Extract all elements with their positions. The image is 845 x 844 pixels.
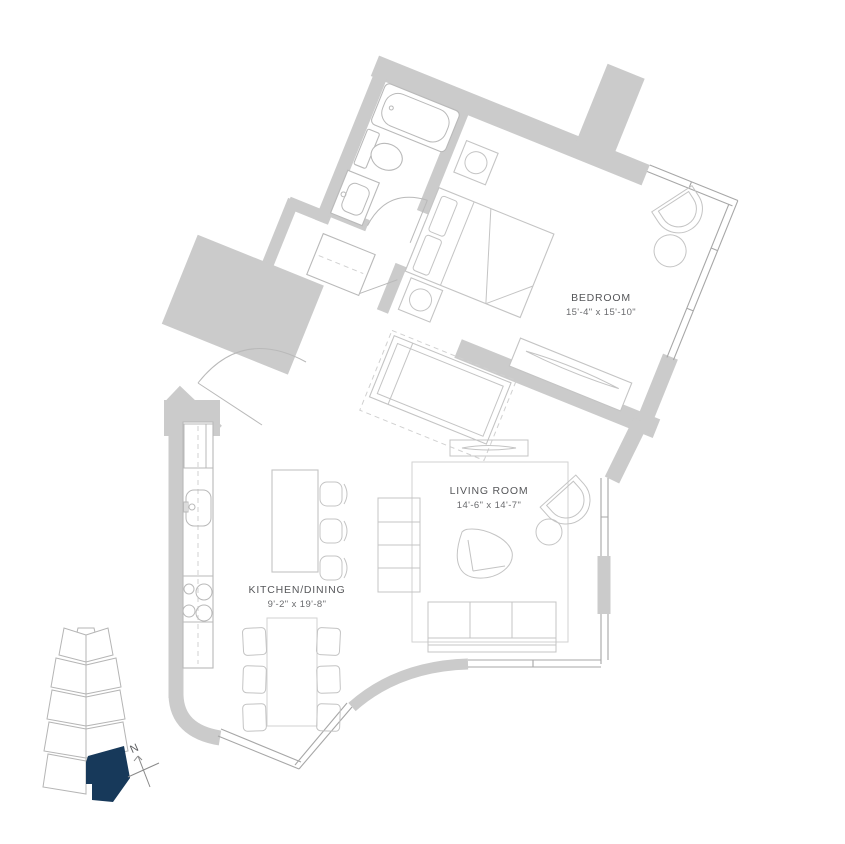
keyplan-unit: [44, 722, 86, 758]
window-se: [295, 703, 352, 769]
living-room-dims: 14'-6" x 14'-7": [457, 500, 521, 511]
window-south: [468, 660, 601, 667]
bath-door-arc: [367, 183, 427, 243]
stool-2: [320, 519, 342, 543]
window-mullions: [647, 182, 738, 311]
sofa-cushions: [428, 602, 556, 645]
stool-1: [320, 482, 342, 506]
wall-hall-stub: [382, 265, 401, 311]
nightstand-top: [454, 141, 498, 185]
lower-walls: [164, 393, 641, 769]
bath-door: [367, 183, 427, 243]
sofa: [428, 602, 556, 652]
kitchen-dining-label: KITCHEN/DINING: [249, 584, 346, 596]
chair: [243, 704, 267, 732]
keyplan-unit: [86, 690, 125, 726]
nightstand-bottom: [398, 278, 442, 322]
living-room-label: LIVING ROOM: [450, 485, 529, 497]
window-east-lower: [601, 613, 608, 664]
tv-console: [378, 498, 420, 592]
wall-left-lower: [267, 200, 294, 267]
kitchen-island: [272, 470, 347, 580]
chair-inner: [658, 192, 703, 234]
curved-wall: [352, 664, 468, 707]
chair: [317, 666, 341, 694]
bedroom-label: BEDROOM: [571, 292, 631, 304]
living-room: [378, 440, 600, 652]
dining-set: [242, 618, 340, 731]
kitchen-wall-elbow: [176, 695, 220, 738]
wall-east-connector: [612, 421, 641, 480]
keyplan-unit: [43, 754, 86, 794]
compass-arrowhead-icon: [134, 756, 142, 761]
key-plan: [43, 628, 130, 802]
stool-2-back: [344, 521, 347, 541]
keyplan-unit: [51, 658, 86, 694]
north-arrow: N: [128, 742, 159, 787]
stool-3: [320, 556, 342, 580]
nook: [360, 330, 516, 460]
north-label: N: [128, 742, 140, 756]
dining-chairs: [242, 627, 340, 731]
table-detail: [468, 540, 505, 571]
nightstand-1: [454, 141, 498, 185]
wall-entry-mass: [162, 235, 324, 375]
keyplan-unit: [47, 690, 86, 726]
living-lounge-chair: [540, 475, 600, 534]
upper-wing: [160, 0, 777, 516]
window-sw: [218, 729, 301, 769]
chair: [317, 704, 341, 732]
chair: [316, 627, 340, 655]
kitchen-dining-dims: 9'-2" x 19'-8": [268, 599, 327, 610]
floorplan-page: BEDROOM 15'-4" x 15'-10" LIVING ROOM 14'…: [0, 0, 845, 844]
side-table: [536, 519, 562, 545]
coffee-table: [457, 529, 512, 578]
kitchen: [183, 422, 213, 668]
bedroom-ottoman: [649, 230, 691, 272]
media-console: [450, 440, 528, 456]
bedroom-dims: 15'-4" x 15'-10": [566, 307, 636, 318]
wall-chase: [572, 64, 645, 167]
island-stools: [320, 482, 347, 580]
console-top: [450, 440, 528, 456]
table-outline: [457, 529, 512, 578]
island-outline: [272, 470, 318, 572]
window-bedroom-right: [667, 198, 738, 360]
chair: [242, 627, 266, 655]
keyplan-unit: [86, 658, 121, 694]
floorplan-drawing: BEDROOM 15'-4" x 15'-10" LIVING ROOM 14'…: [0, 0, 845, 844]
console-shelves: [378, 522, 420, 568]
bedroom-windows: [585, 165, 738, 360]
stool-3-back: [344, 558, 347, 578]
stool-1-back: [344, 484, 347, 504]
dining-table: [267, 618, 317, 726]
chair-inner: [547, 481, 592, 525]
window-east-upper: [601, 478, 608, 556]
nightstand-2: [398, 278, 442, 322]
chair: [243, 666, 267, 694]
compass-cross-icon: [128, 756, 159, 787]
